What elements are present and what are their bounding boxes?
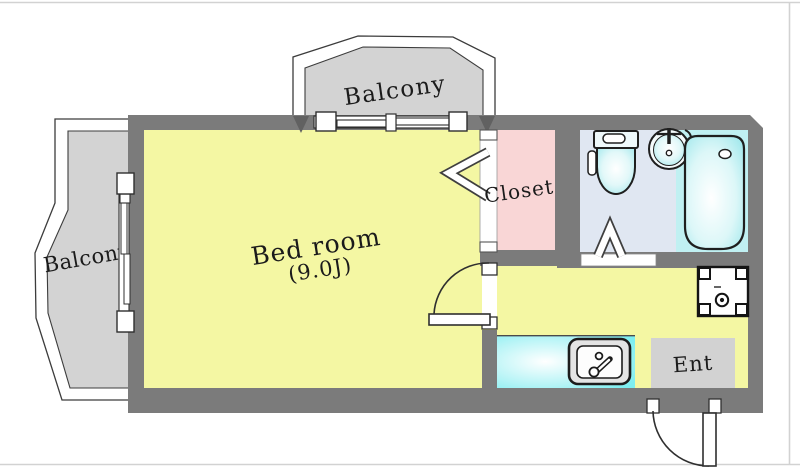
kitchen-counter	[497, 335, 635, 388]
toilet-bowl	[597, 148, 635, 194]
window-handle-box	[316, 112, 336, 131]
window-sash	[396, 118, 452, 125]
entrance-label: Ent	[672, 351, 714, 378]
window-sash	[121, 203, 127, 254]
bathtub-body	[685, 136, 744, 249]
toilet-tank-lid	[603, 134, 625, 143]
pan-drain-center	[720, 298, 724, 302]
entrance-area: Ent	[651, 338, 735, 388]
kitchen-faucet-dot	[596, 353, 603, 360]
window-handle-box	[386, 114, 396, 131]
door-jamb	[482, 263, 497, 275]
wall-closet-bath	[555, 130, 580, 254]
window-handle-box	[449, 112, 467, 131]
toilet-lever	[588, 151, 596, 175]
washbasin-drain	[666, 150, 671, 155]
door-jamb	[480, 242, 497, 252]
kitchen-faucet-base	[589, 367, 598, 376]
wall-bottom	[128, 388, 763, 413]
balcony-top: Balcony	[293, 36, 495, 122]
bathtub-drain	[719, 150, 731, 159]
floor-plan: Balcony Balcony	[0, 0, 800, 468]
door-jamb	[647, 399, 659, 413]
bedroom-doorway	[482, 275, 497, 318]
window-latch	[120, 194, 130, 203]
wall-bedroom-kitchen	[482, 330, 497, 388]
window-sash	[337, 120, 387, 127]
pan-corner	[736, 268, 747, 279]
door-leaf	[429, 314, 490, 325]
door-jamb	[480, 130, 497, 140]
floor-plan-page: Balcony Balcony	[0, 0, 800, 468]
bathtub	[685, 136, 744, 249]
pan-corner	[736, 304, 747, 315]
door-leaf	[703, 413, 716, 466]
pan-corner	[699, 304, 710, 315]
window-sash	[124, 254, 130, 304]
kitchen-sink-basin	[577, 346, 622, 378]
door-jamb	[709, 399, 721, 413]
washing-machine-pan	[698, 267, 748, 316]
pan-corner	[699, 268, 710, 279]
window-handle-box	[117, 173, 134, 194]
window-handle-box	[117, 311, 134, 332]
